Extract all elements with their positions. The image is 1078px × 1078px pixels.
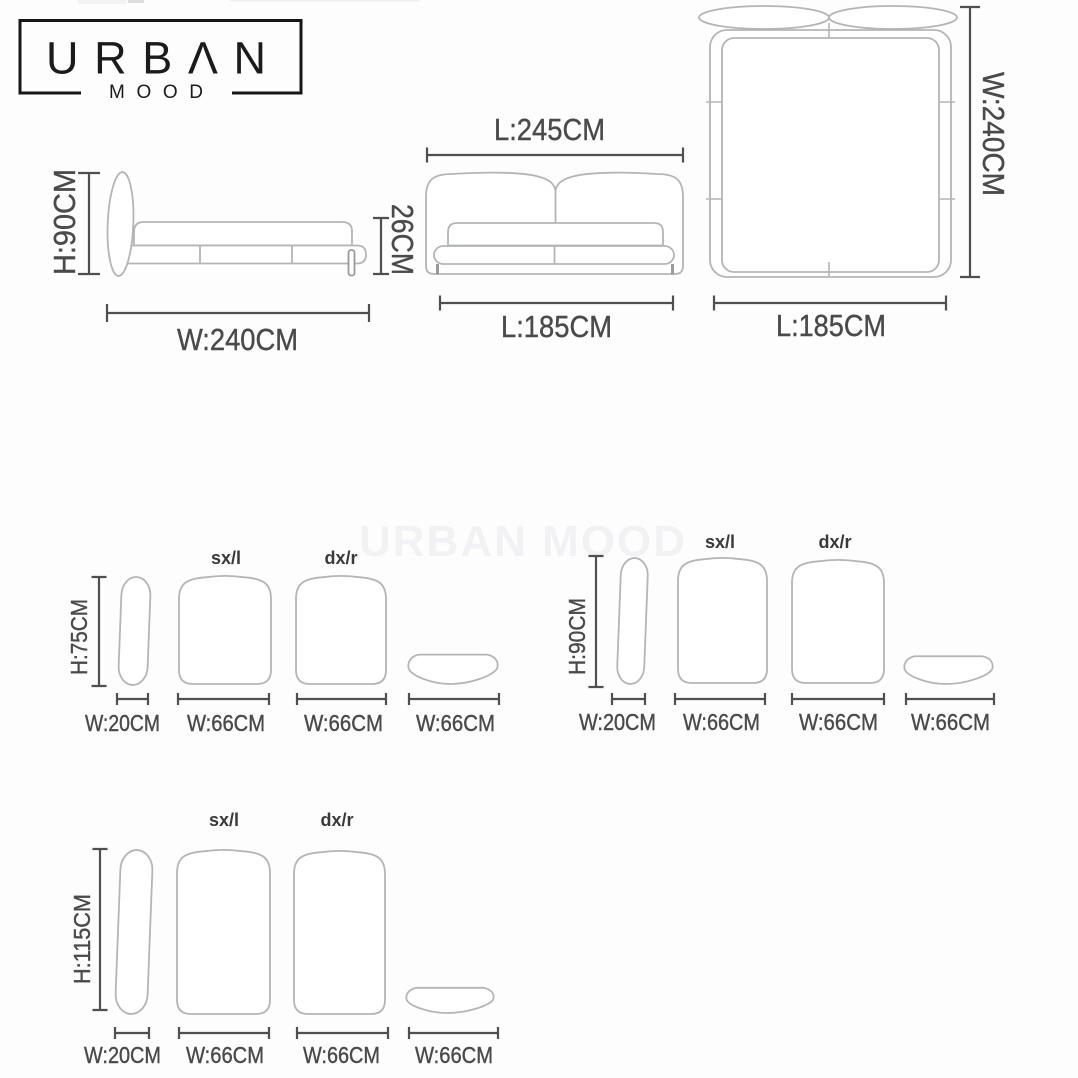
svg-text:W:20CM: W:20CM <box>579 709 656 735</box>
svg-text:W:240CM: W:240CM <box>976 72 1011 196</box>
svg-text:W:66CM: W:66CM <box>416 710 495 736</box>
svg-text:dx/r: dx/r <box>324 548 357 568</box>
svg-text:W:66CM: W:66CM <box>187 710 265 736</box>
svg-text:URBΛN: URBΛN <box>46 33 274 84</box>
svg-text:H:75CM: H:75CM <box>66 599 92 675</box>
svg-text:W:66CM: W:66CM <box>186 1042 264 1068</box>
svg-text:H:90CM: H:90CM <box>47 169 82 275</box>
svg-text:L:245CM: L:245CM <box>494 112 605 147</box>
svg-text:sx/l: sx/l <box>211 548 241 568</box>
svg-text:L:185CM: L:185CM <box>501 309 612 344</box>
svg-text:W:66CM: W:66CM <box>683 709 760 735</box>
svg-text:dx/r: dx/r <box>818 532 851 552</box>
svg-text:sx/l: sx/l <box>705 532 735 552</box>
svg-text:L:185CM: L:185CM <box>776 308 886 343</box>
svg-text:H:115CM: H:115CM <box>69 894 95 984</box>
svg-text:W:240CM: W:240CM <box>177 322 298 357</box>
svg-text:W:20CM: W:20CM <box>85 710 160 736</box>
svg-text:sx/l: sx/l <box>209 810 239 830</box>
svg-text:W:66CM: W:66CM <box>304 710 383 736</box>
svg-text:W:66CM: W:66CM <box>911 709 990 735</box>
svg-text:W:20CM: W:20CM <box>84 1042 161 1068</box>
svg-text:W:66CM: W:66CM <box>303 1042 380 1068</box>
svg-text:W:66CM: W:66CM <box>415 1042 493 1068</box>
svg-text:H:90CM: H:90CM <box>564 598 590 675</box>
svg-text:dx/r: dx/r <box>320 810 353 830</box>
svg-text:26CM: 26CM <box>385 204 420 275</box>
svg-text:W:66CM: W:66CM <box>799 709 878 735</box>
